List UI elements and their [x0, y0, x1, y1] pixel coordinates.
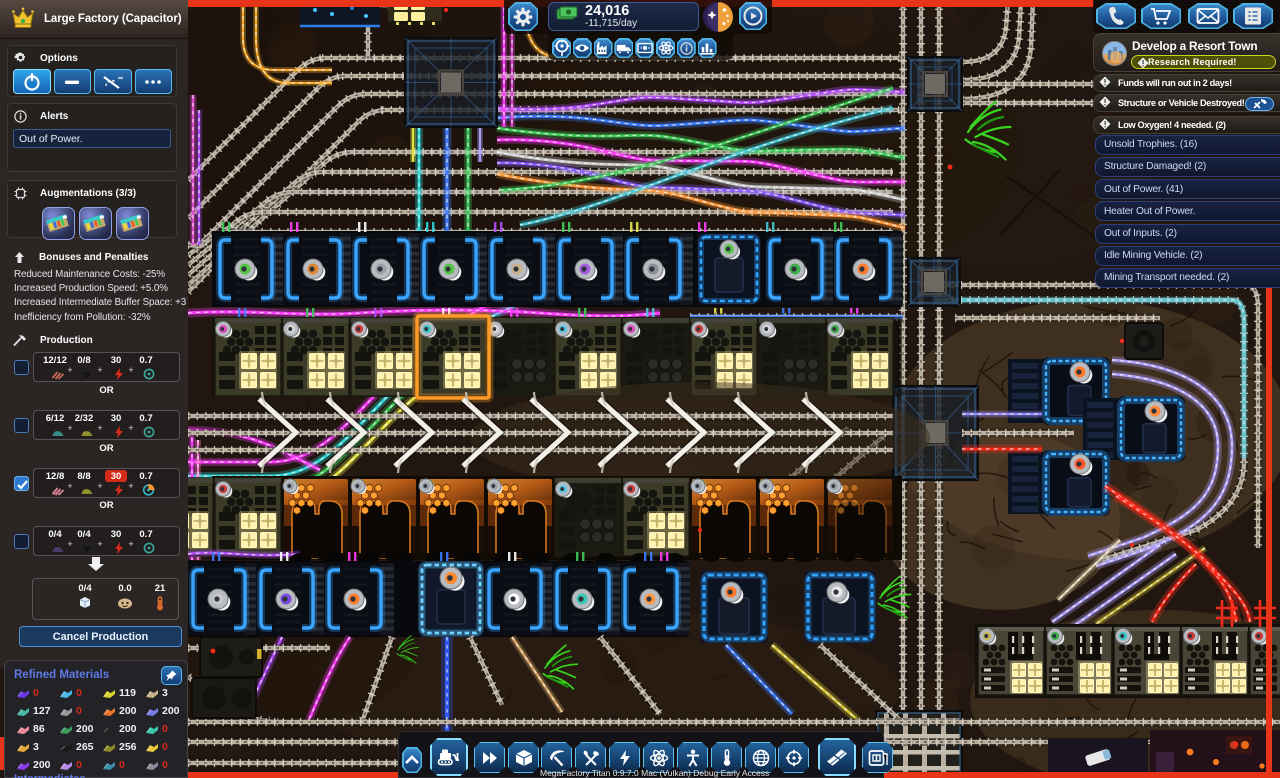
svg-text:∞: ∞	[118, 75, 123, 82]
